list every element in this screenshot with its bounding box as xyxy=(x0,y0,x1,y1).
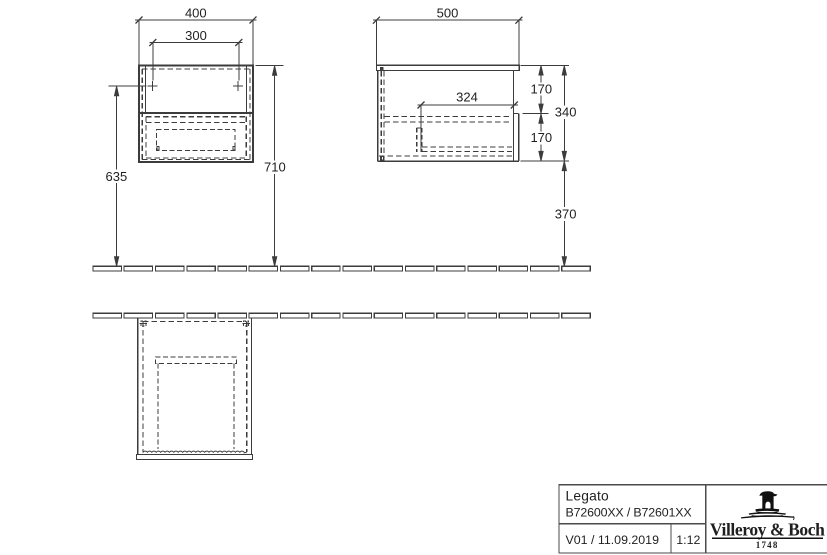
svg-text:Legato: Legato xyxy=(566,489,610,504)
svg-text:324: 324 xyxy=(456,90,478,105)
svg-text:500: 500 xyxy=(437,6,459,21)
svg-text:Villeroy & Boch: Villeroy & Boch xyxy=(710,520,825,540)
svg-text:300: 300 xyxy=(185,28,207,43)
svg-text:170: 170 xyxy=(530,130,552,145)
svg-text:V01 / 11.09.2019: V01 / 11.09.2019 xyxy=(566,533,660,547)
svg-text:170: 170 xyxy=(530,81,552,96)
svg-text:400: 400 xyxy=(185,6,207,21)
svg-text:370: 370 xyxy=(555,207,577,222)
svg-text:1748: 1748 xyxy=(756,540,779,550)
svg-text:635: 635 xyxy=(106,169,128,184)
svg-text:710: 710 xyxy=(264,160,286,175)
svg-text:1:12: 1:12 xyxy=(676,533,700,547)
svg-text:B72600XX / B72601XX: B72600XX / B72601XX xyxy=(566,505,692,519)
svg-text:340: 340 xyxy=(555,105,577,120)
